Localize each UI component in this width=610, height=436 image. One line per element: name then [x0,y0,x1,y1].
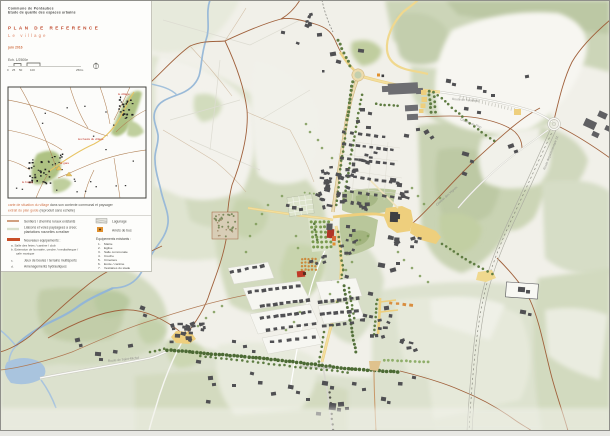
svg-text:le village: le village [118,92,130,96]
svg-text:Ech. 1/2500e: Ech. 1/2500e [8,58,28,62]
svg-text:extrait du plan guide (reprodu: extrait du plan guide (reproduit sans ec… [8,209,75,213]
svg-text:Jeux de boules / terrains mult: Jeux de boules / terrains multisports [24,259,77,263]
svg-text:Equipements existants :: Equipements existants : [96,237,131,241]
svg-text:Sentiers / chemins ruraux exis: Sentiers / chemins ruraux existants [24,220,76,224]
svg-text:les hauts du village: les hauts du village [78,137,104,141]
svg-text:la gare: la gare [60,161,70,165]
svg-text:Amenagements hydrauliques: Amenagements hydrauliques [24,265,67,269]
svg-text:Nouveaux equipements :: Nouveaux equipements : [24,239,61,243]
svg-text:le bourg: le bourg [22,180,33,184]
svg-text:7.: 7. [98,266,101,270]
svg-text:50: 50 [19,68,23,72]
svg-text:Lagunage: Lagunage [112,220,127,224]
svg-text:PLAN DE REFERENCE: PLAN DE REFERENCE [8,26,100,31]
svg-text:Arrets de bus: Arrets de bus [112,229,132,233]
svg-text:Vestiaires du stade: Vestiaires du stade [104,266,130,270]
svg-text:Etude de qualite des espaces u: Etude de qualite des espaces urbains [8,11,76,15]
svg-text:carte de situation du village: carte de situation du village dans son c… [8,203,114,207]
svg-text:plantations nouvelles a realis: plantations nouvelles a realiser [24,230,70,234]
svg-text:100: 100 [30,68,35,72]
svg-text:250m: 250m [76,68,84,72]
svg-text:c.: c. [11,259,14,263]
svg-text:Le village: Le village [8,33,48,38]
svg-text:Liaisons et voies paysagees a: Liaisons et voies paysagees a creer, [24,226,77,230]
svg-text:d.: d. [11,265,14,269]
svg-text:cafe musique: cafe musique [16,252,35,256]
svg-text:25: 25 [12,68,16,72]
svg-text:juin 2016: juin 2016 [7,46,23,50]
